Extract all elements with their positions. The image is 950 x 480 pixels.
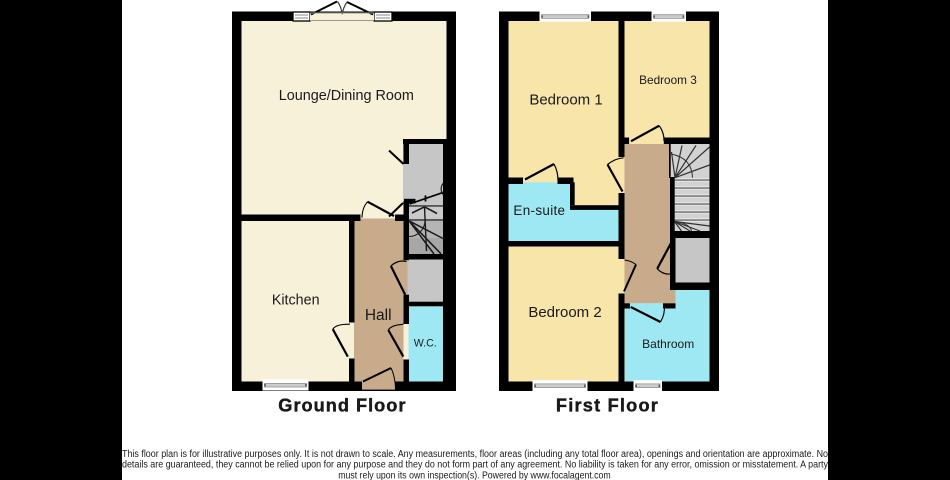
- svg-text:This floor plan is for illustr: This floor plan is for illustrative purp…: [122, 449, 828, 460]
- svg-text:Lounge/Dining Room: Lounge/Dining Room: [279, 88, 414, 104]
- svg-text:Ground Floor: Ground Floor: [278, 396, 406, 416]
- svg-text:First Floor: First Floor: [556, 396, 659, 416]
- svg-text:details are guaranteed, they c: details are guaranteed, they cannot be r…: [122, 460, 828, 471]
- svg-text:Bedroom 3: Bedroom 3: [639, 73, 697, 87]
- svg-text:Kitchen: Kitchen: [272, 293, 320, 309]
- svg-text:Bedroom 2: Bedroom 2: [528, 304, 601, 321]
- svg-text:W.C.: W.C.: [414, 338, 437, 350]
- svg-text:must rely upon its own inspect: must rely upon its own inspection(s). Po…: [338, 470, 611, 480]
- svg-text:En-suite: En-suite: [513, 203, 565, 218]
- svg-text:Bedroom 1: Bedroom 1: [529, 92, 602, 109]
- svg-text:Hall: Hall: [365, 307, 392, 324]
- svg-text:Bathroom: Bathroom: [642, 337, 694, 351]
